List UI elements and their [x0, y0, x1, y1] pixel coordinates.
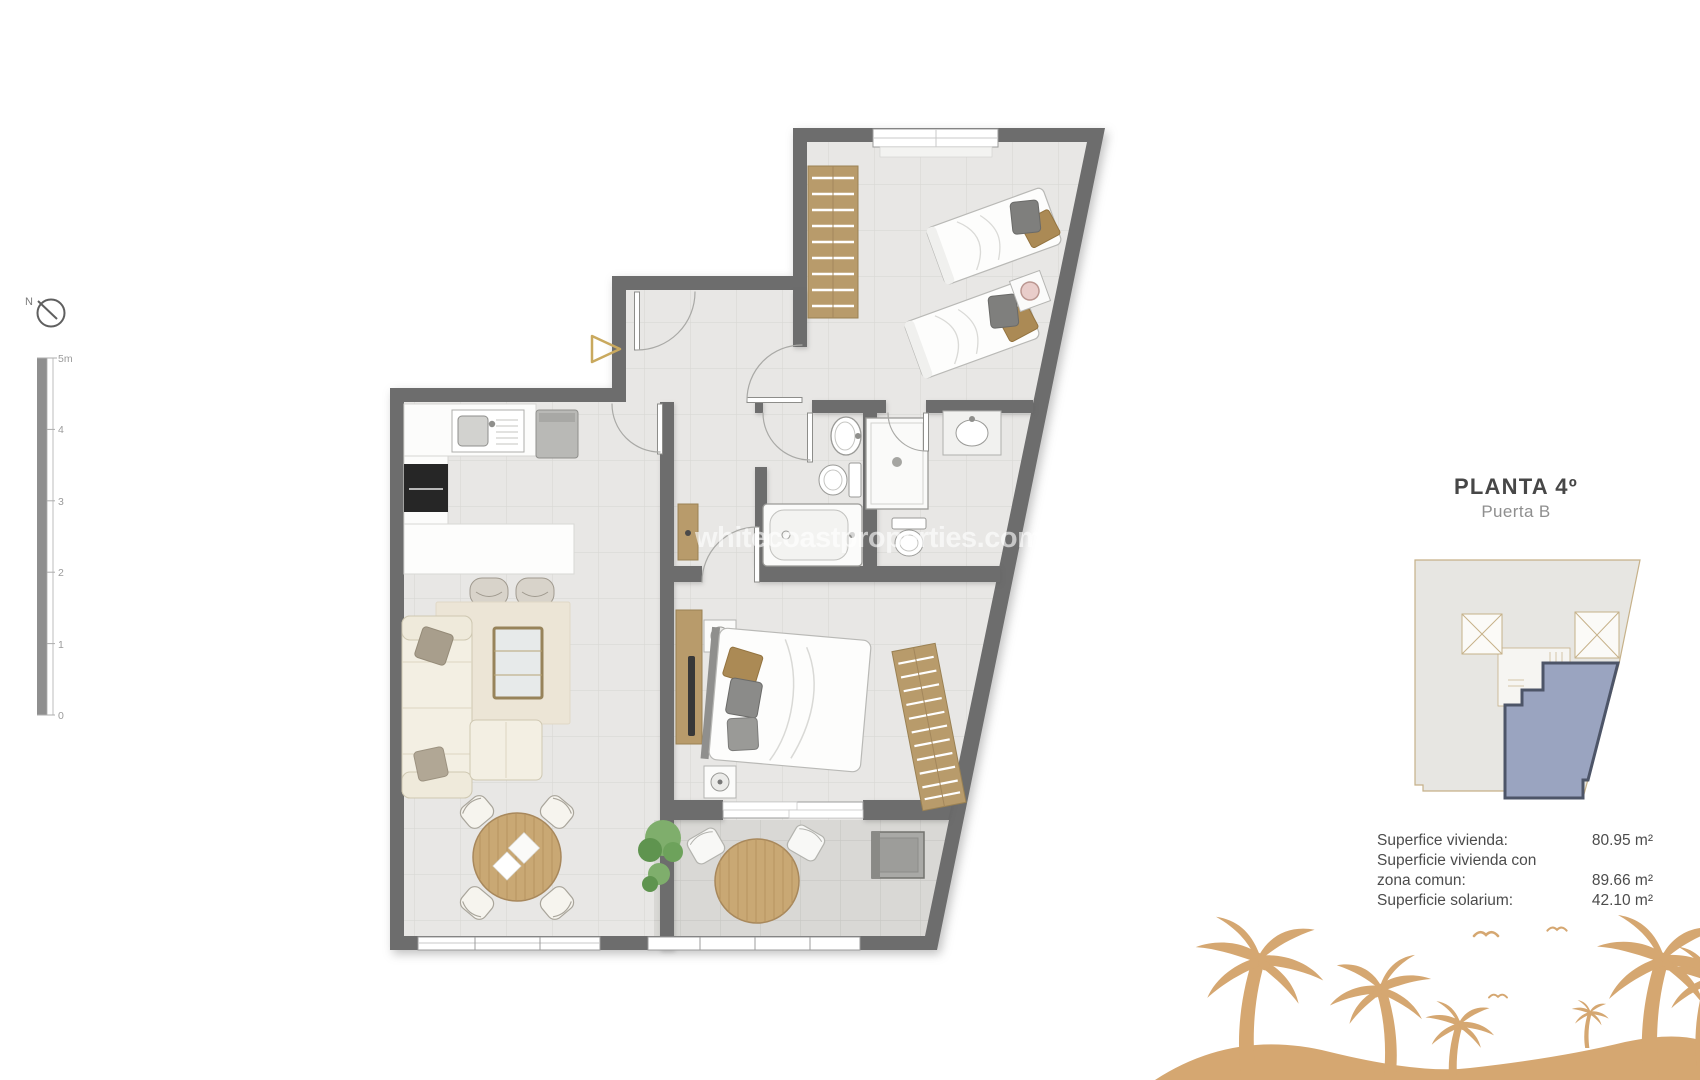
- area-table: Superfice vivienda: 80.95 m² Superficie …: [1377, 831, 1653, 911]
- area-label: zona comun:: [1377, 871, 1466, 891]
- ac-unit: [872, 832, 924, 878]
- washbasin: [943, 411, 1001, 455]
- floor-plan: [390, 128, 1105, 950]
- page-title: PLANTA 4º: [1385, 474, 1647, 500]
- area-value: 42.10 m²: [1592, 891, 1653, 911]
- area-row: zona comun: 89.66 m²: [1377, 871, 1653, 891]
- bathtub: [763, 504, 862, 566]
- toilet: [819, 463, 861, 497]
- bird-icon: [1474, 932, 1498, 936]
- floor-plan-canvas: N 5m 4 3 2 1 0: [0, 0, 1700, 1080]
- kitchen-sink: [452, 410, 524, 452]
- scale-label: 2: [58, 567, 64, 579]
- key-plan-core: [1462, 614, 1502, 654]
- shower: [866, 418, 928, 509]
- kitchen-island: [404, 524, 574, 574]
- palm-sprout: [1572, 1000, 1609, 1048]
- hall-console: [678, 504, 698, 560]
- terrace-balustrade: [648, 937, 860, 950]
- bird-icon: [1547, 928, 1566, 931]
- palm-decoration: [1155, 915, 1700, 1080]
- sofa-pillow: [413, 746, 449, 782]
- north-compass-icon: N: [25, 296, 65, 327]
- area-row: Superficie solarium: 42.10 m²: [1377, 891, 1653, 911]
- scale-bar: 5m 4 3 2 1 0: [37, 353, 73, 722]
- nightstand: [704, 766, 736, 798]
- area-value: 80.95 m²: [1592, 831, 1653, 851]
- appliance-detail: [539, 413, 575, 422]
- bird-icon: [1489, 995, 1507, 998]
- area-row: Superficie vivienda con: [1377, 851, 1653, 871]
- washbasin: [831, 417, 861, 455]
- double-bed: [701, 627, 872, 772]
- area-value: 89.66 m²: [1592, 871, 1653, 891]
- master-terrace-slider: [723, 802, 863, 818]
- coffee-table: [494, 628, 542, 698]
- scale-label: 3: [58, 496, 64, 508]
- scale-label: 5m: [58, 353, 73, 365]
- key-plan: [1415, 560, 1640, 798]
- sand-ground: [1155, 1036, 1700, 1080]
- living-room-window: [418, 937, 600, 950]
- page-subtitle: Puerta B: [1385, 502, 1647, 522]
- twin-bedroom-window: [873, 129, 998, 157]
- scale-label: 4: [58, 424, 64, 436]
- tv-sideboard: [676, 610, 702, 744]
- area-row: Superfice vivienda: 80.95 m²: [1377, 831, 1653, 851]
- compass-label: N: [25, 296, 33, 308]
- area-label: Superficie vivienda con: [1377, 851, 1536, 871]
- scale-label: 0: [58, 710, 64, 722]
- toilet: [892, 518, 926, 556]
- key-plan-core: [1575, 612, 1619, 658]
- scale-label: 1: [58, 639, 64, 651]
- cooktop: [404, 464, 448, 512]
- twin-wardrobe: [808, 166, 858, 318]
- area-label: Superficie solarium:: [1377, 891, 1513, 911]
- area-label: Superfice vivienda:: [1377, 831, 1508, 851]
